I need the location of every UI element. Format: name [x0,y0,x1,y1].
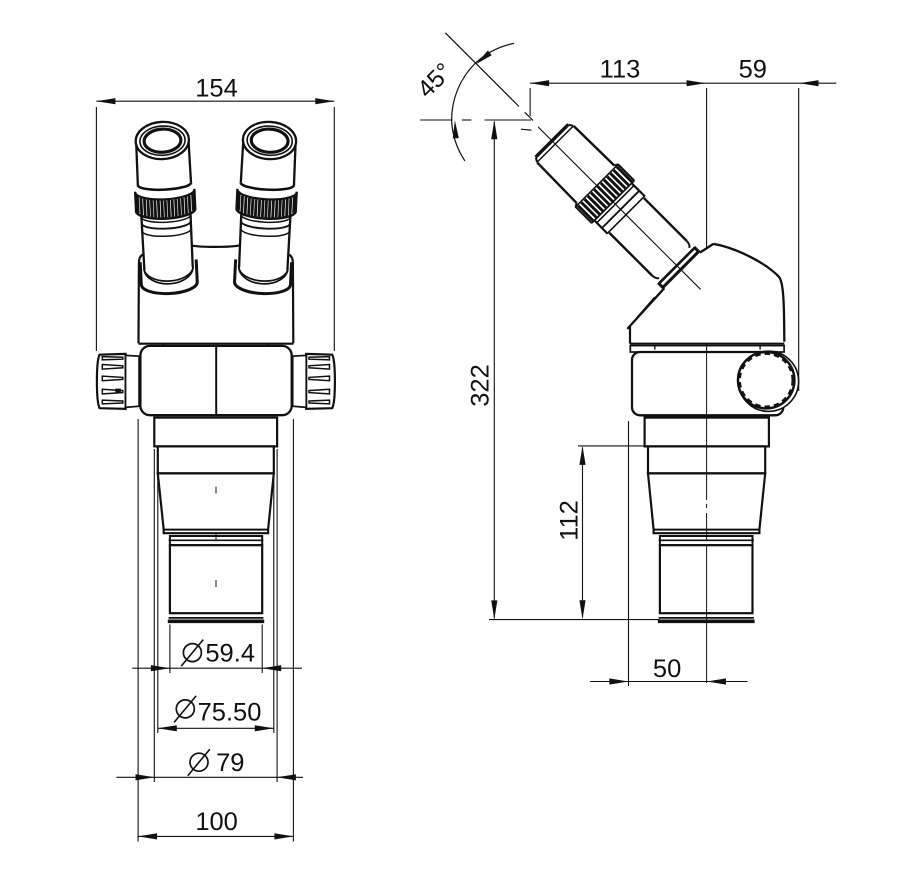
svg-text:59: 59 [739,56,767,84]
svg-text:322: 322 [467,364,495,407]
svg-text:59.4: 59.4 [205,640,255,668]
svg-text:75.50: 75.50 [198,699,262,727]
svg-text:79: 79 [216,749,244,777]
svg-text:154: 154 [195,75,238,103]
svg-text:100: 100 [195,808,238,836]
svg-text:112: 112 [556,500,584,541]
svg-text:113: 113 [600,56,641,84]
svg-text:50: 50 [653,655,681,683]
